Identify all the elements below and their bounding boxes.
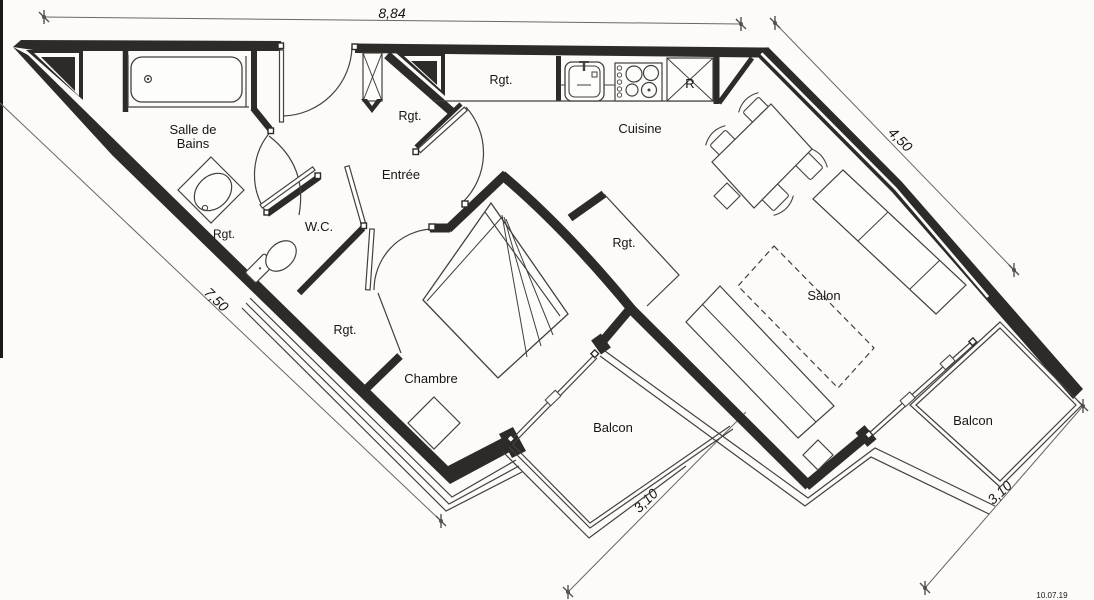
svg-text:Sàlon: Sàlon [807,288,840,303]
svg-text:W.C.: W.C. [305,219,333,234]
svg-text:Salle de: Salle de [170,122,217,137]
svg-text:Entrée: Entrée [382,167,420,182]
svg-text:Cuisine: Cuisine [618,121,661,136]
svg-text:Bains: Bains [177,136,210,151]
svg-text:Balcon: Balcon [953,413,993,428]
svg-text:Rgt.: Rgt. [213,227,235,241]
svg-text:Rgt.: Rgt. [399,109,422,123]
svg-text:Rgt.: Rgt. [613,236,636,250]
svg-text:Rgt.: Rgt. [334,323,357,337]
svg-text:Chambre: Chambre [404,371,457,386]
svg-text:10.07.19: 10.07.19 [1036,591,1068,600]
svg-text:R: R [685,76,694,91]
svg-text:8,84: 8,84 [378,5,405,21]
svg-text:Balcon: Balcon [593,420,633,435]
svg-text:Rgt.: Rgt. [490,73,513,87]
